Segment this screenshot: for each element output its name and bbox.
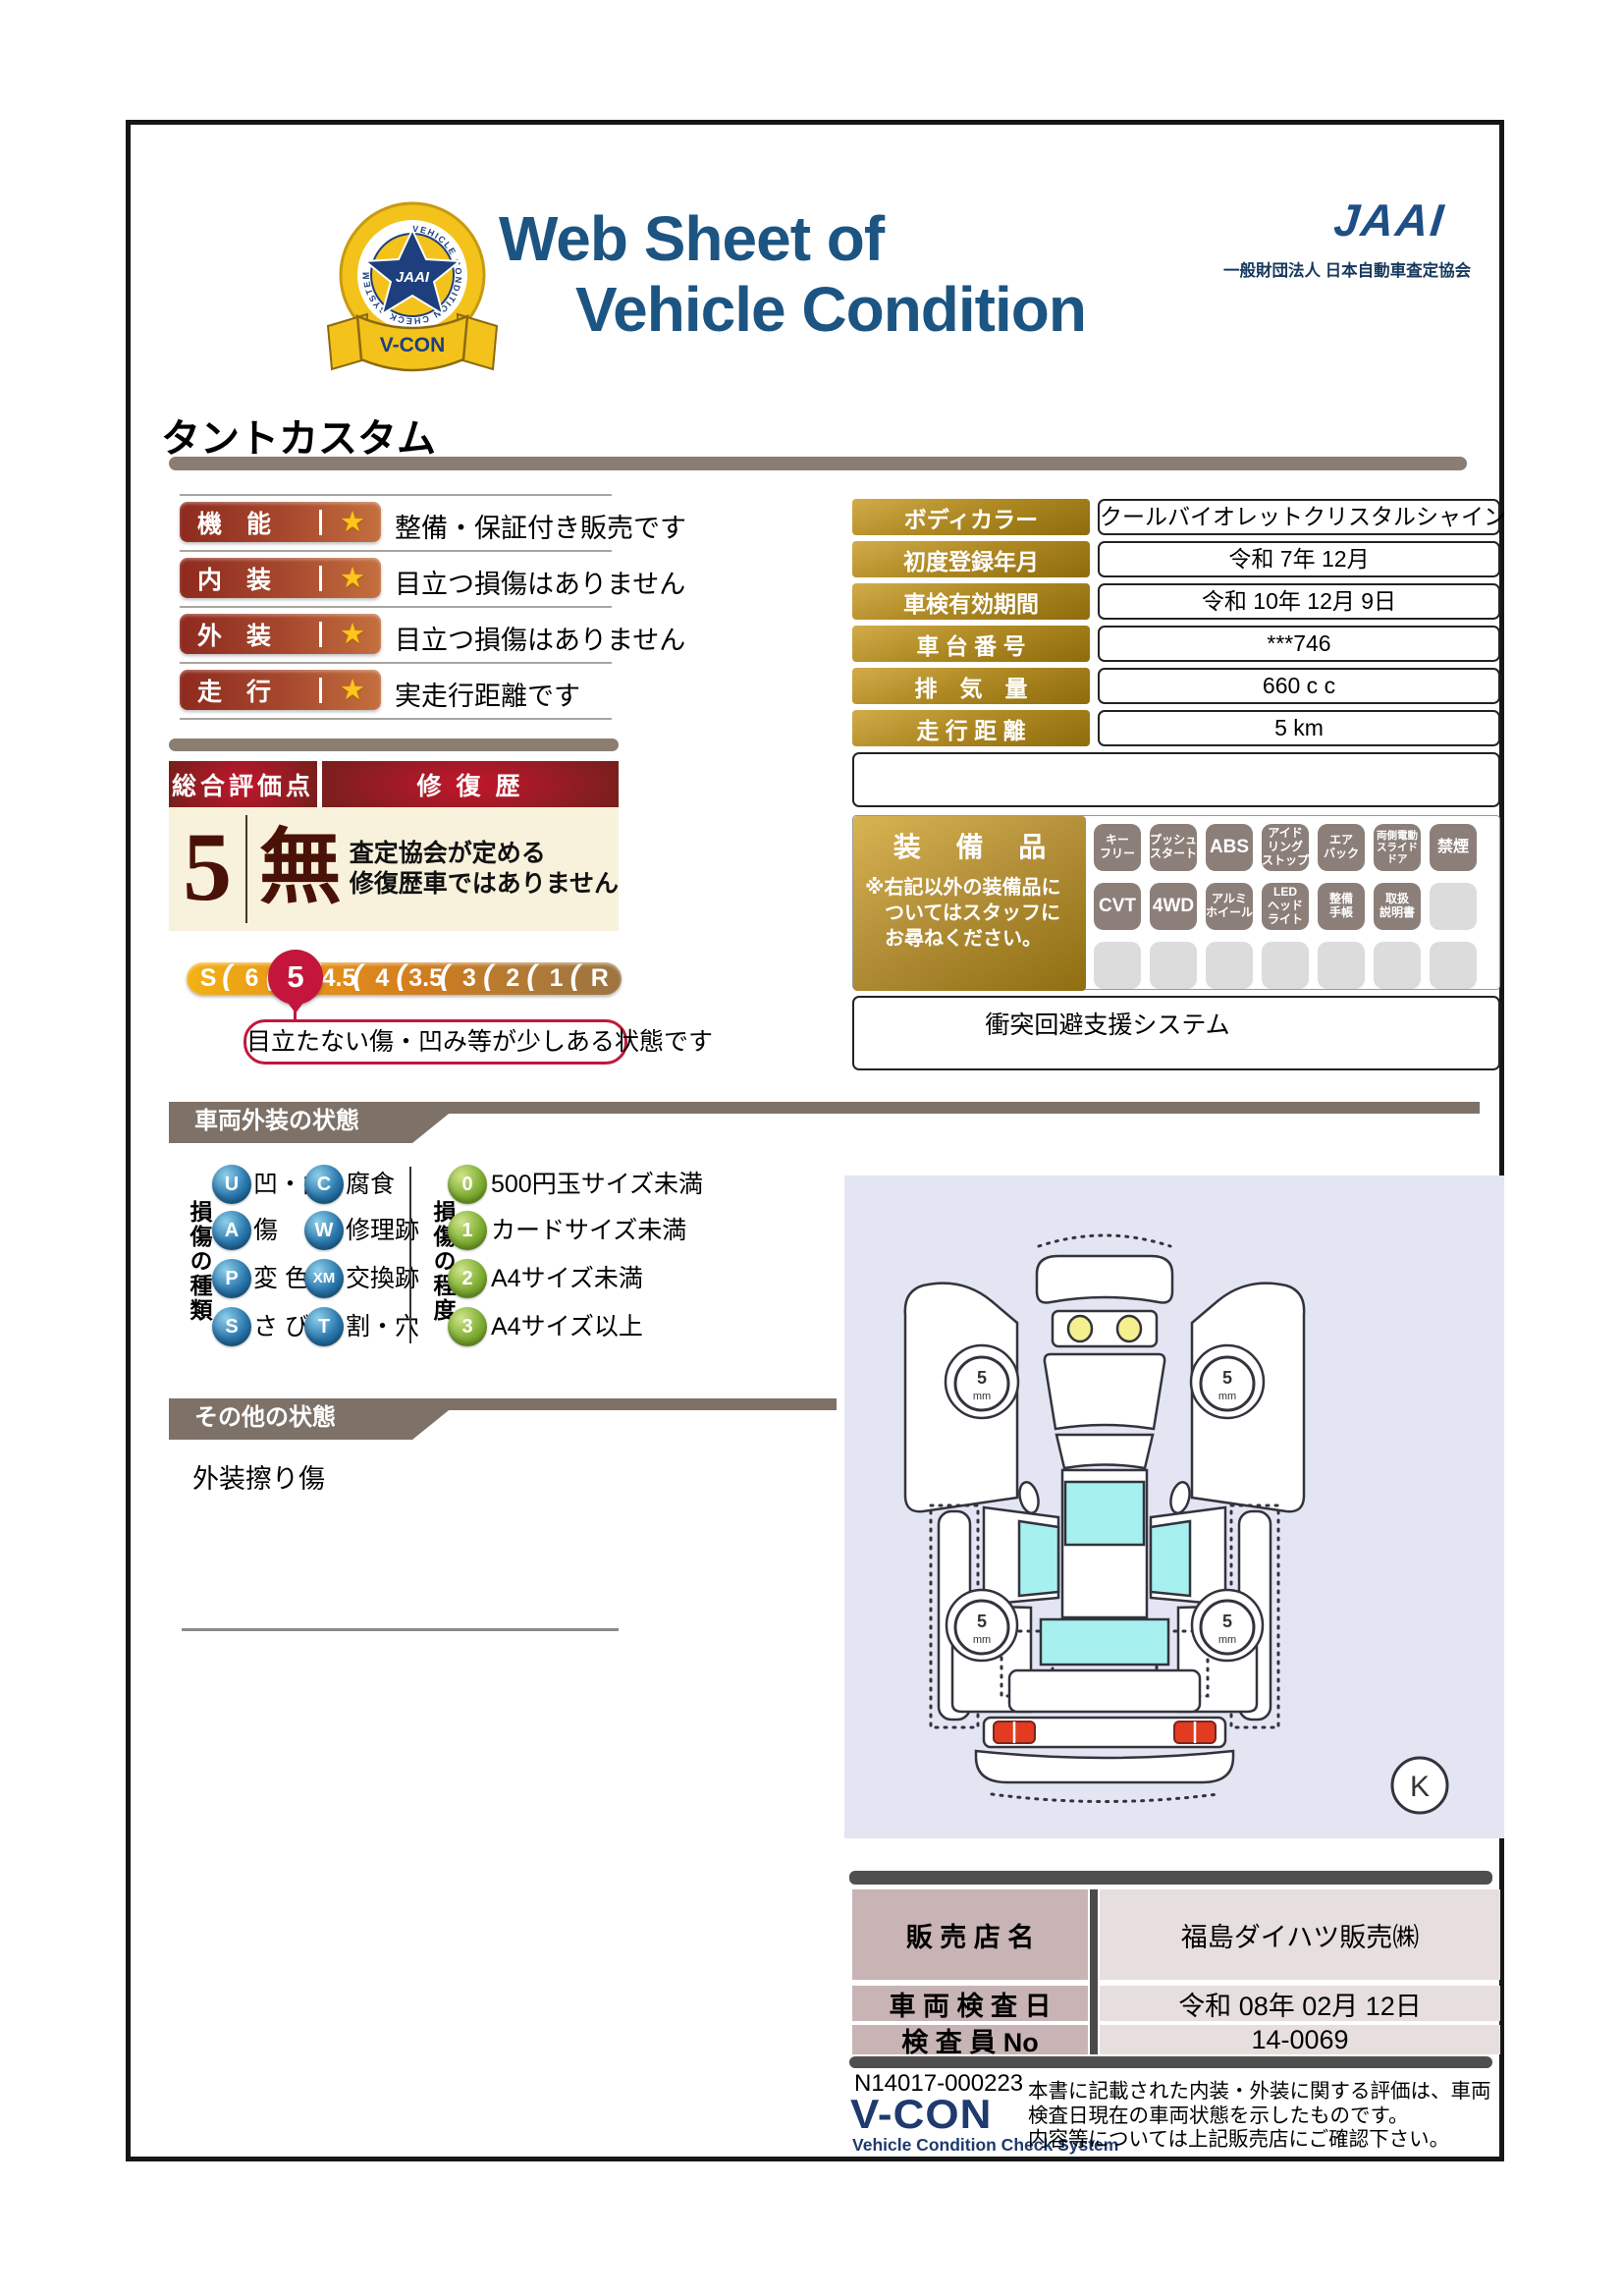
equipment-badge-empty: [1094, 942, 1141, 989]
damage-type-axis: 損傷の種類: [183, 1171, 216, 1351]
rating-row-interior: 内 装: [180, 558, 381, 598]
equipment-note-line3: お尋ねください。: [865, 926, 1060, 952]
damage-type-icon-w: W: [304, 1211, 344, 1250]
rating-desc: 目立つ損傷はありません: [395, 619, 685, 657]
divider-bar-left: [169, 738, 619, 751]
info-empty-box: [852, 752, 1500, 807]
vcon-logo: V-CON: [850, 2092, 992, 2139]
equipment-box: 装 備 品 ※右記以外の装備品に ついてはスタッフに お尋ねください。 キー フ…: [852, 815, 1500, 990]
info-value-mileage: 5 km: [1098, 710, 1500, 746]
dealer-label-inspection-date: 車 両 検 査 日: [852, 1986, 1088, 2021]
scale-label: S: [200, 964, 217, 992]
equipment-note: ※右記以外の装備品に ついてはスタッフに お尋ねください。: [865, 875, 1060, 952]
front-bumper: [1037, 1256, 1172, 1303]
tire-depth-unit: mm: [973, 1391, 991, 1402]
equipment-badge-empty: [1318, 942, 1365, 989]
equipment-title: 装 備 品: [853, 826, 1086, 865]
rating-divider: [319, 622, 322, 647]
equipment-header-panel: 装 備 品 ※右記以外の装備品に ついてはスタッフに お尋ねください。: [853, 816, 1086, 991]
disclaimer-line1: 本書に記載された内装・外装に関する評価は、車両: [1028, 2080, 1501, 2105]
rear-window: [1041, 1619, 1168, 1665]
info-value-displacement: 660 c c: [1098, 668, 1500, 704]
scale-separator: (: [526, 959, 536, 992]
star-icon: [334, 617, 371, 651]
disclaimer: 本書に記載された内装・外装に関する評価は、車両 検査日現在の車両状態を示したもの…: [1028, 2080, 1501, 2153]
car-diagram-panel: 5 mm 5 mm 5 mm 5 mm K: [844, 1175, 1504, 1838]
disclaimer-line2: 検査日現在の車両状態を示したものです。: [1028, 2105, 1501, 2129]
scale-separator: (: [396, 959, 406, 992]
info-label-bodycolor: ボディカラー: [852, 499, 1090, 535]
equipment-badge-alloywheel: アルミ ホイール: [1206, 883, 1253, 930]
rating-separator: [180, 494, 612, 496]
score-note: 目立たない傷・凹み等が少しある状態です: [243, 1019, 627, 1065]
rating-desc: 実走行距離です: [395, 675, 580, 713]
rating-label: 走 行: [197, 673, 317, 708]
damage-degree-label: カードサイズ未満: [491, 1211, 686, 1250]
front-bumper-outline: [1039, 1235, 1170, 1246]
damage-degree-icon-2: 2: [448, 1259, 487, 1298]
damage-type-icon-a: A: [212, 1211, 251, 1250]
sheet-title-line2: Vehicle Condition: [575, 273, 1086, 346]
info-label-first-registration: 初度登録年月: [852, 541, 1090, 577]
dealer-value-shop: 福島ダイハツ販売㈱: [1100, 1889, 1500, 1980]
equipment-badge-4wd: 4WD: [1150, 883, 1197, 930]
badge-ribbon-text: V-CON: [380, 334, 446, 356]
rating-row-mileage: 走 行: [180, 670, 381, 710]
equipment-badge-empty: [1374, 942, 1421, 989]
tire-depth-value: 5: [1222, 1612, 1232, 1631]
info-label-displacement: 排 気 量: [852, 668, 1090, 704]
scale-separator: (: [222, 959, 232, 992]
equipment-badge-pushstart: プッシュ スタート: [1150, 824, 1197, 871]
damage-type-icon-c: C: [304, 1165, 344, 1204]
repair-header: 修 復 歴: [322, 761, 619, 807]
jaai-subtitle: 一般財団法人 日本自動車査定協会: [1223, 257, 1471, 281]
headlight-left: [1068, 1316, 1092, 1341]
headlight-right: [1117, 1316, 1141, 1341]
equipment-badge-powerslidedoor: 両側電動 スライド ドア: [1374, 824, 1421, 871]
badge-star-text: JAAI: [396, 269, 430, 286]
rating-divider: [319, 678, 322, 703]
scale-label: 4.5: [322, 964, 356, 992]
damage-type-icon-p: P: [212, 1259, 251, 1298]
scale-label: 1: [550, 964, 564, 992]
rating-separator: [180, 718, 612, 720]
equipment-badge-servicebook: 整備 手帳: [1318, 883, 1365, 930]
dealer-table-divider: [1090, 1889, 1098, 2054]
damage-degree-icon-1: 1: [448, 1211, 487, 1250]
rear-bumper-outline: [992, 1794, 1217, 1802]
equipment-badge-airbag: エア バック: [1318, 824, 1365, 871]
equipment-badge-manual: 取扱 説明書: [1374, 883, 1421, 930]
dealer-label-shop: 販 売 店 名: [852, 1889, 1088, 1980]
damage-degree-label: A4サイズ未満: [491, 1259, 643, 1298]
dealer-value-inspector-no: 14-0069: [1100, 2025, 1500, 2054]
equipment-note-line1: ※右記以外の装備品に: [865, 875, 1060, 901]
damage-degree-label: A4サイズ以上: [491, 1307, 643, 1346]
scale-separator: (: [483, 959, 493, 992]
rating-label: 内 装: [197, 561, 317, 596]
equipment-badge-idlingstop: アイド リング ストップ: [1262, 824, 1309, 871]
scale-label: 6: [244, 964, 258, 992]
star-icon: [334, 505, 371, 539]
dealer-table-top-bar: [849, 1871, 1492, 1885]
exterior-section-tab: 車両外装の状態: [169, 1102, 463, 1143]
damage-type-label: さ び: [253, 1307, 309, 1346]
rating-separator: [180, 606, 612, 608]
equipment-badge-ledheadlight: LED ヘッド ライト: [1262, 883, 1309, 930]
scale-label: R: [591, 964, 609, 992]
info-value-bodycolor: クールバイオレットクリスタルシャイン: [1098, 499, 1500, 535]
selected-score-marker: 5: [268, 950, 323, 1005]
side-mirror-left: [1016, 1480, 1041, 1514]
roof-glass: [1065, 1482, 1144, 1545]
vehicle-condition-sheet: VEHICLE CONDITION CHECK SYSTEM JAAI V-CO…: [0, 0, 1623, 2296]
rating-divider: [319, 510, 322, 535]
side-mirror-right: [1167, 1480, 1192, 1514]
taillight-left: [994, 1722, 1035, 1743]
damage-type-icon-t: T: [304, 1307, 344, 1346]
dealer-table-bottom-bar: [849, 2056, 1492, 2068]
tire-depth-unit: mm: [973, 1634, 991, 1646]
hood-panel: [1045, 1354, 1164, 1429]
other-section-tab: その他の状態: [169, 1398, 463, 1440]
damage-type-label: 交換跡: [346, 1259, 419, 1298]
info-value-first-registration: 令和 7年 12月: [1098, 541, 1500, 577]
windshield: [1056, 1435, 1153, 1468]
score-body: 5 無 査定協会が定める 修復歴車ではありません: [169, 807, 619, 931]
legend-divider: [409, 1167, 411, 1343]
rating-desc: 目立つ損傷はありません: [395, 563, 685, 601]
rear-bumper: [976, 1751, 1233, 1782]
damage-type-label: 割・穴: [346, 1307, 419, 1346]
score-scale: S (6 (5 (4.5 (4 (3.5 (3 (2 (1 (R: [187, 962, 622, 995]
jaai-logo: JAAI: [1306, 194, 1478, 248]
scale-label: 2: [506, 964, 519, 992]
dealer-label-inspector-no: 検 査 員 No: [852, 2025, 1088, 2054]
inspection-mark: K: [1410, 1771, 1430, 1803]
damage-type-label: 傷: [253, 1211, 278, 1250]
scale-seg: (R: [578, 962, 622, 995]
info-label-chassis-no: 車 台 番 号: [852, 626, 1090, 662]
other-condition-note: 外装擦り傷: [192, 1457, 325, 1496]
rating-separator: [180, 550, 612, 552]
equipment-badge-abs: ABS: [1206, 824, 1253, 871]
safety-system-box: 衝突回避支援システム: [852, 996, 1500, 1070]
tire-depth-value: 5: [977, 1368, 987, 1388]
equipment-badge-empty: [1150, 942, 1197, 989]
sheet-title-line1: Web Sheet of: [499, 202, 884, 275]
taillight-right: [1174, 1722, 1216, 1743]
damage-degree-icon-0: 0: [448, 1165, 487, 1204]
tire-depth-value: 5: [1222, 1368, 1232, 1388]
scale-label: 3: [462, 964, 476, 992]
slide-window-right: [1151, 1521, 1190, 1596]
damage-type-icon-xm: XM: [304, 1259, 344, 1298]
tire-depth-unit: mm: [1218, 1391, 1236, 1402]
info-value-inspection-valid: 令和 10年 12月 9日: [1098, 583, 1500, 620]
rating-row-exterior: 外 装: [180, 614, 381, 654]
equipment-badge-empty: [1206, 942, 1253, 989]
jaai-wordmark: JAAI: [1331, 194, 1447, 246]
scale-label: 4: [375, 964, 389, 992]
info-label-inspection-valid: 車検有効期間: [852, 583, 1090, 620]
info-label-mileage: 走 行 距 離: [852, 710, 1090, 746]
scale-separator: (: [440, 959, 450, 992]
overall-score: 5: [169, 807, 245, 931]
damage-type-label: 変 色: [253, 1259, 309, 1298]
equipment-badge-nonsmoking: 禁煙: [1430, 824, 1477, 871]
repair-note: 査定協会が定める 修復歴車ではありません: [350, 839, 619, 901]
rating-divider: [319, 566, 322, 591]
scale-label: 3.5: [408, 964, 443, 992]
damage-type-icon-s: S: [212, 1307, 251, 1346]
score-header-left: 総合評価点: [169, 761, 317, 807]
equipment-badge-empty: [1430, 883, 1477, 930]
rating-separator: [180, 662, 612, 664]
repair-note-line2: 修復歴車ではありません: [350, 870, 619, 898]
dealer-value-inspection-date: 令和 08年 02月 12日: [1100, 1986, 1500, 2021]
score-header: 総合評価点 修 復 歴: [169, 761, 619, 807]
disclaimer-line3: 内容等については上記販売店にご確認下さい。: [1028, 2128, 1501, 2153]
note-underline: [182, 1628, 619, 1631]
star-icon: [334, 673, 371, 707]
divider-bar-top: [169, 457, 1467, 470]
scale-separator: (: [352, 959, 362, 992]
vehicle-name: タントカスタム: [161, 407, 436, 464]
rating-label: 外 装: [197, 617, 317, 652]
star-icon: [334, 561, 371, 595]
equipment-note-line2: ついてはスタッフに: [865, 901, 1060, 926]
repair-mark: 無: [259, 828, 342, 910]
vcon-badge: VEHICLE CONDITION CHECK SYSTEM JAAI V-CO…: [316, 196, 509, 383]
damage-type-icon-u: U: [212, 1165, 251, 1204]
damage-degree-icon-3: 3: [448, 1307, 487, 1346]
scale-separator: (: [570, 959, 580, 992]
damage-degree-label: 500円玉サイズ未満: [491, 1165, 703, 1204]
rating-label: 機 能: [197, 505, 317, 540]
damage-type-label: 修理跡: [346, 1211, 419, 1250]
tire-depth-unit: mm: [1218, 1634, 1236, 1646]
equipment-badge-empty: [1430, 942, 1477, 989]
damage-type-label: 腐食: [346, 1165, 395, 1204]
rating-row-function: 機 能: [180, 502, 381, 542]
info-value-chassis-no: ***746: [1098, 626, 1500, 662]
tire-depth-value: 5: [977, 1612, 987, 1631]
slide-window-left: [1019, 1521, 1058, 1596]
tailgate: [1009, 1670, 1200, 1712]
equipment-badge-keyfree: キー フリー: [1094, 824, 1141, 871]
equipment-badge-cvt: CVT: [1094, 883, 1141, 930]
equipment-badge-empty: [1262, 942, 1309, 989]
rating-desc: 整備・保証付き販売です: [395, 507, 686, 545]
repair-note-line1: 査定協会が定める: [350, 840, 546, 867]
car-exploded-view: 5 mm 5 mm 5 mm 5 mm K: [844, 1175, 1504, 1838]
